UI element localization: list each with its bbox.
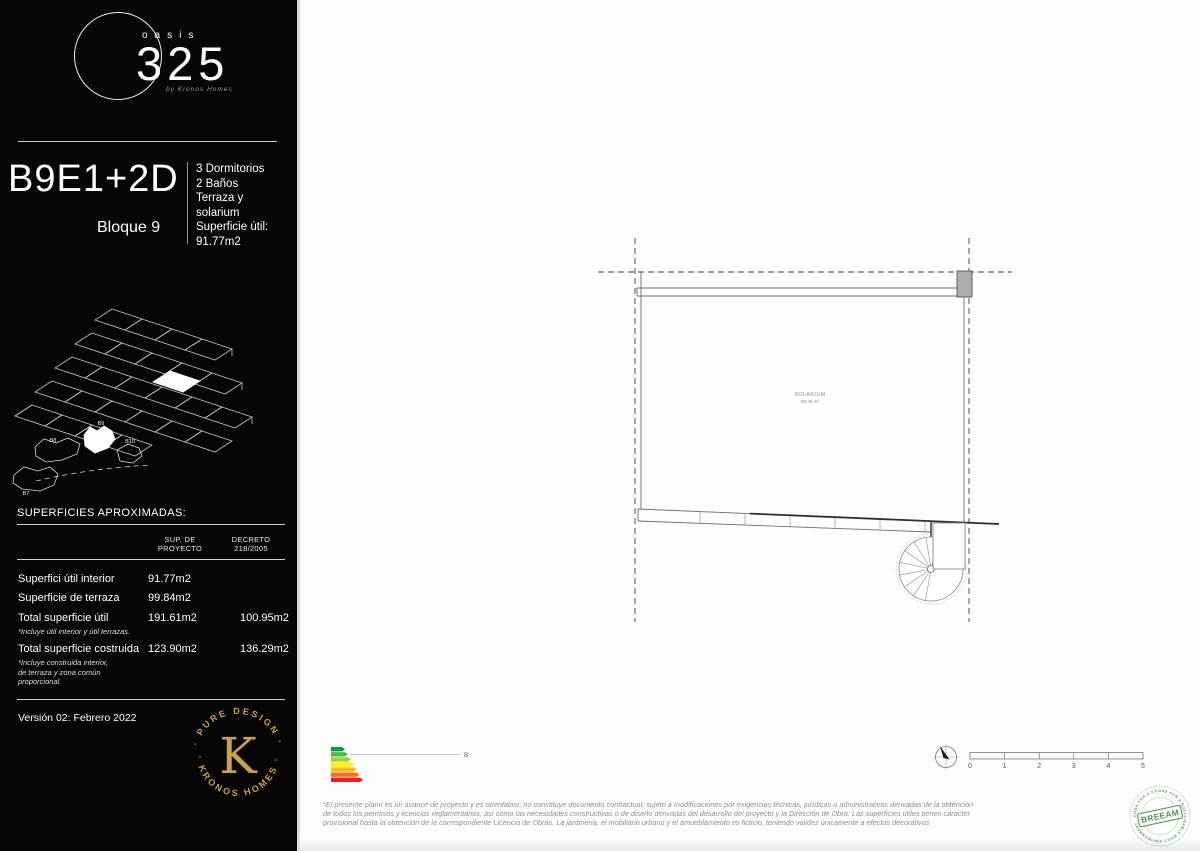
svg-text:5: 5 [1141, 763, 1145, 770]
site-labels: B8 B9 B10 B7 [23, 421, 135, 497]
row-label: Superfici útil interior [18, 573, 115, 585]
kronos-monogram: K [219, 727, 258, 785]
site-road-dashed [36, 465, 152, 481]
feature-line: Terraza y [196, 191, 268, 206]
block-b9-highlight [84, 426, 115, 453]
svg-text:2: 2 [1037, 763, 1041, 770]
col-header-proyecto: SUP. DE PROYECTO [140, 535, 220, 553]
feature-line: Superficie útil: [196, 220, 268, 235]
feature-line: 2 Baños [196, 177, 268, 192]
railing-ticks [700, 512, 925, 532]
label-b10: B10 [125, 439, 135, 445]
energy-rating-label: B [331, 747, 468, 782]
room-name: SOLARIUM [794, 392, 825, 398]
svg-text:3: 3 [1072, 763, 1076, 770]
unit-features: 3 Dormitorios 2 Baños Terraza y solarium… [196, 162, 268, 249]
energy-bar-b-icon [331, 752, 348, 756]
drawing-area: SOLARIUM 80.48 m² B [300, 0, 1200, 851]
building-locator-diagram: B8 B9 B10 B7 [0, 295, 300, 500]
label-b9: B9 [98, 421, 105, 427]
room-label-group: SOLARIUM 80.48 m² [794, 392, 825, 404]
oasis-logo-byline: by Kronos Homes [166, 86, 233, 93]
unit-code-title: B9E1+2D [8, 158, 179, 201]
energy-bar-c-icon [331, 757, 351, 761]
table-rule [17, 699, 285, 700]
plan-sheet: oasis 325 by Kronos Homes B9E1+2D Bloque… [0, 0, 1200, 851]
col-header-decreto: DECRETO 218/2005 [214, 535, 288, 553]
scale-bar: 0 1 2 3 4 5 [968, 753, 1145, 771]
disclaimer-text: *El presente plano es un avance de proye… [323, 800, 980, 827]
svg-text:4: 4 [1106, 763, 1110, 770]
stair-landing [933, 523, 965, 569]
parapet-dark-segment [750, 514, 999, 524]
feature-line: solarium [196, 206, 268, 221]
svg-text:1: 1 [1003, 763, 1007, 770]
room-area: 80.48 m² [801, 399, 820, 404]
logo-divider [18, 141, 277, 142]
feature-line: 3 Dormitorios [196, 162, 268, 177]
oasis-logo-number: 325 [136, 36, 229, 91]
svg-text:0: 0 [968, 763, 972, 770]
areas-table-title: SUPERFICIES APROXIMADAS: [17, 507, 186, 519]
scale-numbers: 0 1 2 3 4 5 [968, 763, 1145, 770]
parapet-bottom [638, 521, 931, 532]
solarium-floor-plan: SOLARIUM 80.48 m² [637, 271, 999, 604]
row-value-decreto: 100.95m2 [240, 612, 289, 624]
block-b8-outline [35, 438, 80, 462]
building-wireframe [15, 309, 252, 456]
label-b7: B7 [23, 491, 30, 497]
energy-bar-a-icon [331, 747, 345, 751]
row-value-proyecto: 123.90m2 [148, 643, 197, 655]
chimney-block [957, 271, 972, 297]
row-label: Superficie de terraza [18, 592, 120, 604]
row-footnote: *Incluye útil interior y útil terrazas. [18, 627, 130, 637]
row-footnote: *Incluye construida interior, de terraza… [18, 658, 108, 687]
feature-line: 91.77m2 [196, 235, 268, 250]
unit-block-subtitle: Bloque 9 [97, 219, 160, 237]
label-b8: B8 [50, 438, 57, 444]
bottom-shadow [300, 837, 1200, 851]
version-text: Versión 02: Febrero 2022 [18, 712, 137, 724]
site-key-plan [13, 426, 152, 491]
north-compass-icon [933, 744, 959, 770]
highlighted-unit [153, 371, 200, 392]
energy-bar-e-icon [331, 767, 357, 771]
block-b7-outline [13, 467, 58, 491]
table-rule [17, 524, 285, 525]
row-label: Total superficie útil [18, 612, 109, 624]
row-value-proyecto: 191.61m2 [148, 612, 197, 624]
row-label: Total superficie costruida [18, 643, 139, 655]
kronos-homes-logo: · PURE DESIGN · · KRONOS HOMES · K [189, 706, 287, 804]
row-value-proyecto: 91.77m2 [148, 573, 191, 585]
table-rule [17, 559, 285, 560]
sidebar: oasis 325 by Kronos Homes B9E1+2D Bloque… [0, 0, 300, 851]
energy-bar-d-icon [331, 762, 354, 766]
row-value-proyecto: 99.84m2 [148, 592, 191, 604]
energy-bar-f-icon [331, 773, 360, 777]
energy-bar-g-icon [331, 778, 363, 782]
title-vertical-rule [187, 162, 188, 244]
row-value-decreto: 136.29m2 [240, 643, 289, 655]
energy-rating-letter: B [464, 752, 468, 759]
